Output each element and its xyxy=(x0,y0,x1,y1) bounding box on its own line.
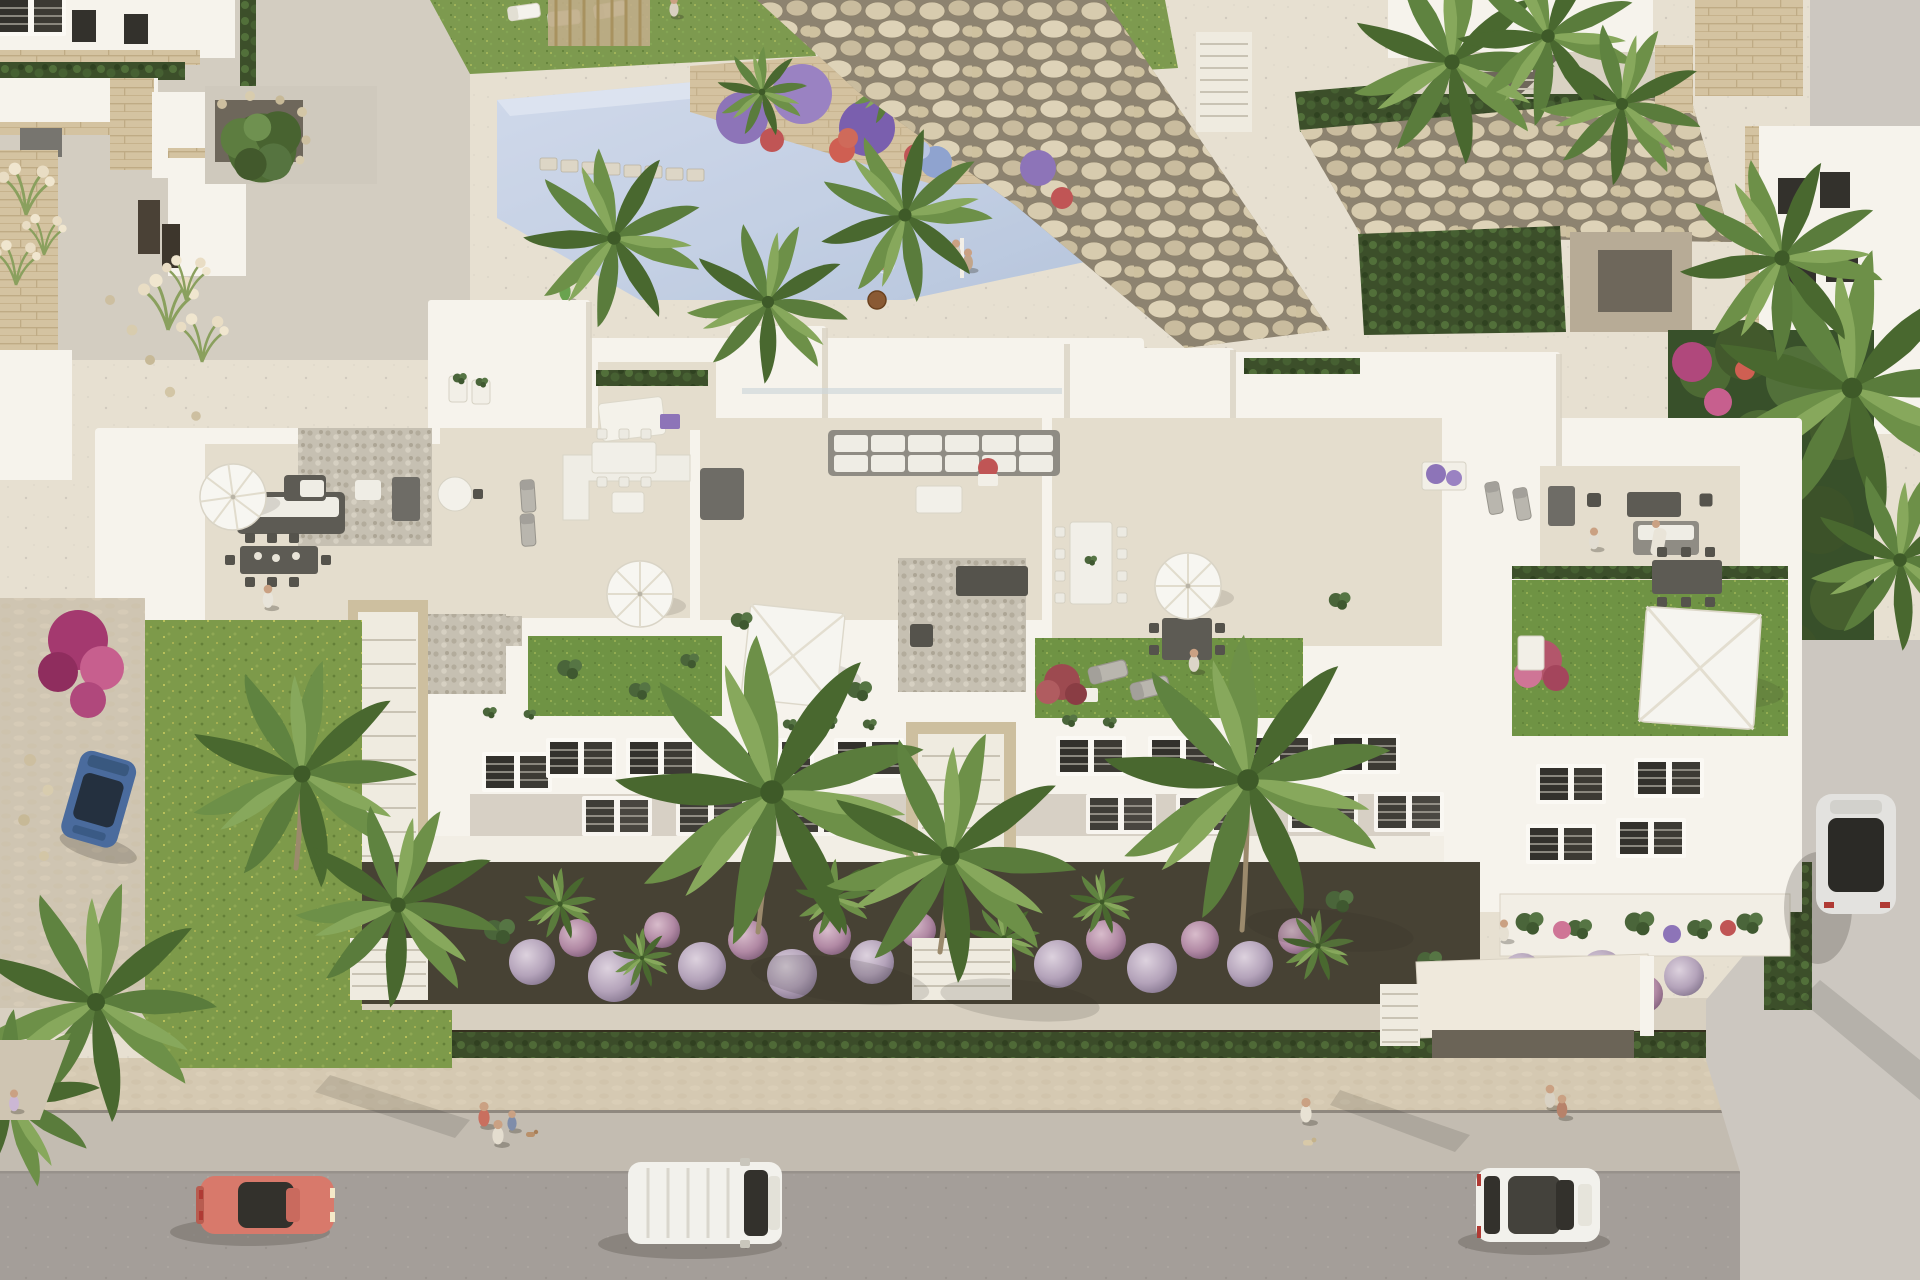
villa-hedge xyxy=(0,62,185,80)
aerial-scene xyxy=(0,0,1920,1280)
car-white-hatchback xyxy=(1458,1168,1610,1255)
street-gutter xyxy=(0,1112,1920,1174)
dining-set-white xyxy=(592,429,656,487)
purple-planter xyxy=(660,414,680,429)
right-wing-planters xyxy=(1500,894,1790,956)
bougainvillea xyxy=(1672,342,1712,382)
cypress-row xyxy=(240,0,256,88)
gate-steps xyxy=(1380,984,1420,1046)
glass-balustrade xyxy=(742,388,1062,394)
curb-line xyxy=(0,1110,1920,1113)
stone-pillar xyxy=(110,78,154,170)
dark-slab xyxy=(956,566,1028,596)
dark-doorway xyxy=(138,200,160,254)
dark-cube xyxy=(910,624,933,647)
stone-villa-roof xyxy=(1695,0,1803,96)
gutter-line xyxy=(0,1171,1920,1174)
pergola-lines xyxy=(556,0,640,46)
entry-gate xyxy=(1416,954,1654,1058)
dining-set-dark3 xyxy=(1652,547,1722,607)
render-viewport xyxy=(0,0,1920,1280)
terracotta-pot xyxy=(868,291,886,309)
pebble-small xyxy=(488,616,522,646)
villa-window xyxy=(72,10,96,42)
roof-hedge-planter xyxy=(596,370,708,386)
hedge-block xyxy=(1358,226,1566,335)
left-white-wall xyxy=(0,350,72,480)
dark-gravel xyxy=(1598,250,1672,312)
villa-window xyxy=(124,14,148,44)
bbq-block xyxy=(700,468,744,520)
villa-window-r xyxy=(1820,172,1850,208)
driveway-top xyxy=(1810,0,1920,128)
roof-hedge-planter xyxy=(1244,358,1360,374)
hanging-chair xyxy=(598,396,666,442)
roof-hedge-planter xyxy=(1512,566,1788,579)
coffee-table xyxy=(916,486,962,513)
